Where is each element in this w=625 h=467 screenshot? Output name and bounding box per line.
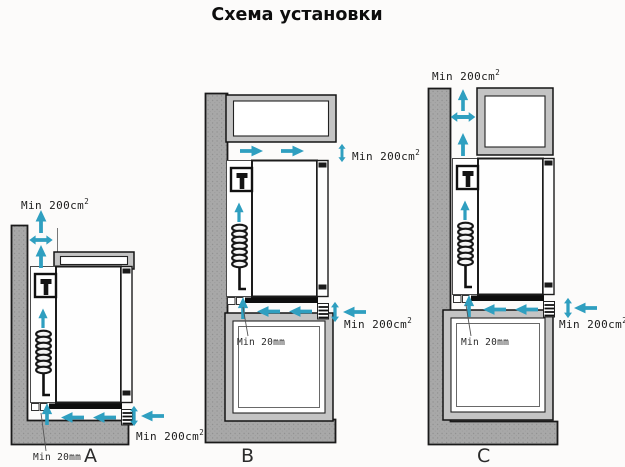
refrigerator [453, 159, 555, 318]
airflow-left-arrow [343, 307, 366, 318]
installation-diagram: Схема установки Min 200cm2 Min 200cm2 Mi… [0, 0, 625, 467]
installation-scheme-page: Схема установки Min 200cm2 Min 200cm2 Mi… [0, 0, 625, 467]
airflow-left-arrow [574, 303, 597, 314]
diagram-letter: A [84, 445, 97, 467]
clearance-arrow [564, 298, 572, 318]
min-gap-label: Min 20mm [461, 337, 509, 348]
diagram-letter: C [477, 445, 490, 467]
min-area-label-top: Min 200cm2 [21, 197, 89, 212]
min-gap-label: Min 20mm [237, 337, 285, 348]
airflow-up-arrow [36, 245, 47, 268]
upper-cabinet-inner [234, 101, 329, 136]
airflow-up-arrow [458, 133, 469, 156]
airflow-right-arrow [240, 146, 263, 157]
diagram-letter: B [241, 445, 254, 467]
refrigerator [227, 161, 329, 320]
diagram-a: Min 200cm2 Min 200cm2 Min 20mm A [12, 197, 205, 467]
airflow-up-arrow [458, 89, 468, 111]
countertop-inner [61, 257, 128, 265]
min-area-label-bottom: Min 200cm2 [136, 428, 204, 443]
airflow-left-arrow [141, 411, 164, 422]
lower-cabinet-inner [233, 321, 325, 413]
refrigerator [31, 267, 133, 426]
page-title: Схема установки [211, 5, 382, 25]
lower-cabinet-inner [451, 318, 545, 412]
clearance-arrow [338, 144, 345, 162]
min-area-label-top: Min 200cm2 [432, 68, 500, 83]
clearance-arrow [29, 235, 52, 244]
min-area-label-bottom: Min 200cm2 [344, 316, 412, 331]
min-area-label-top: Min 200cm2 [352, 148, 420, 163]
airflow-up-arrow [36, 210, 47, 233]
diagram-c: Min 200cm2 Min 200cm2 Min 20mm C [429, 68, 625, 467]
clearance-arrow [451, 112, 476, 122]
diagram-b: Min 200cm2 Min 200cm2 Min 20mm B [206, 94, 421, 467]
airflow-right-arrow [281, 146, 304, 157]
min-gap-label: Min 20mm [33, 452, 81, 463]
min-area-label-bottom: Min 200cm2 [559, 316, 625, 331]
upper-cabinet-inner [485, 96, 545, 147]
